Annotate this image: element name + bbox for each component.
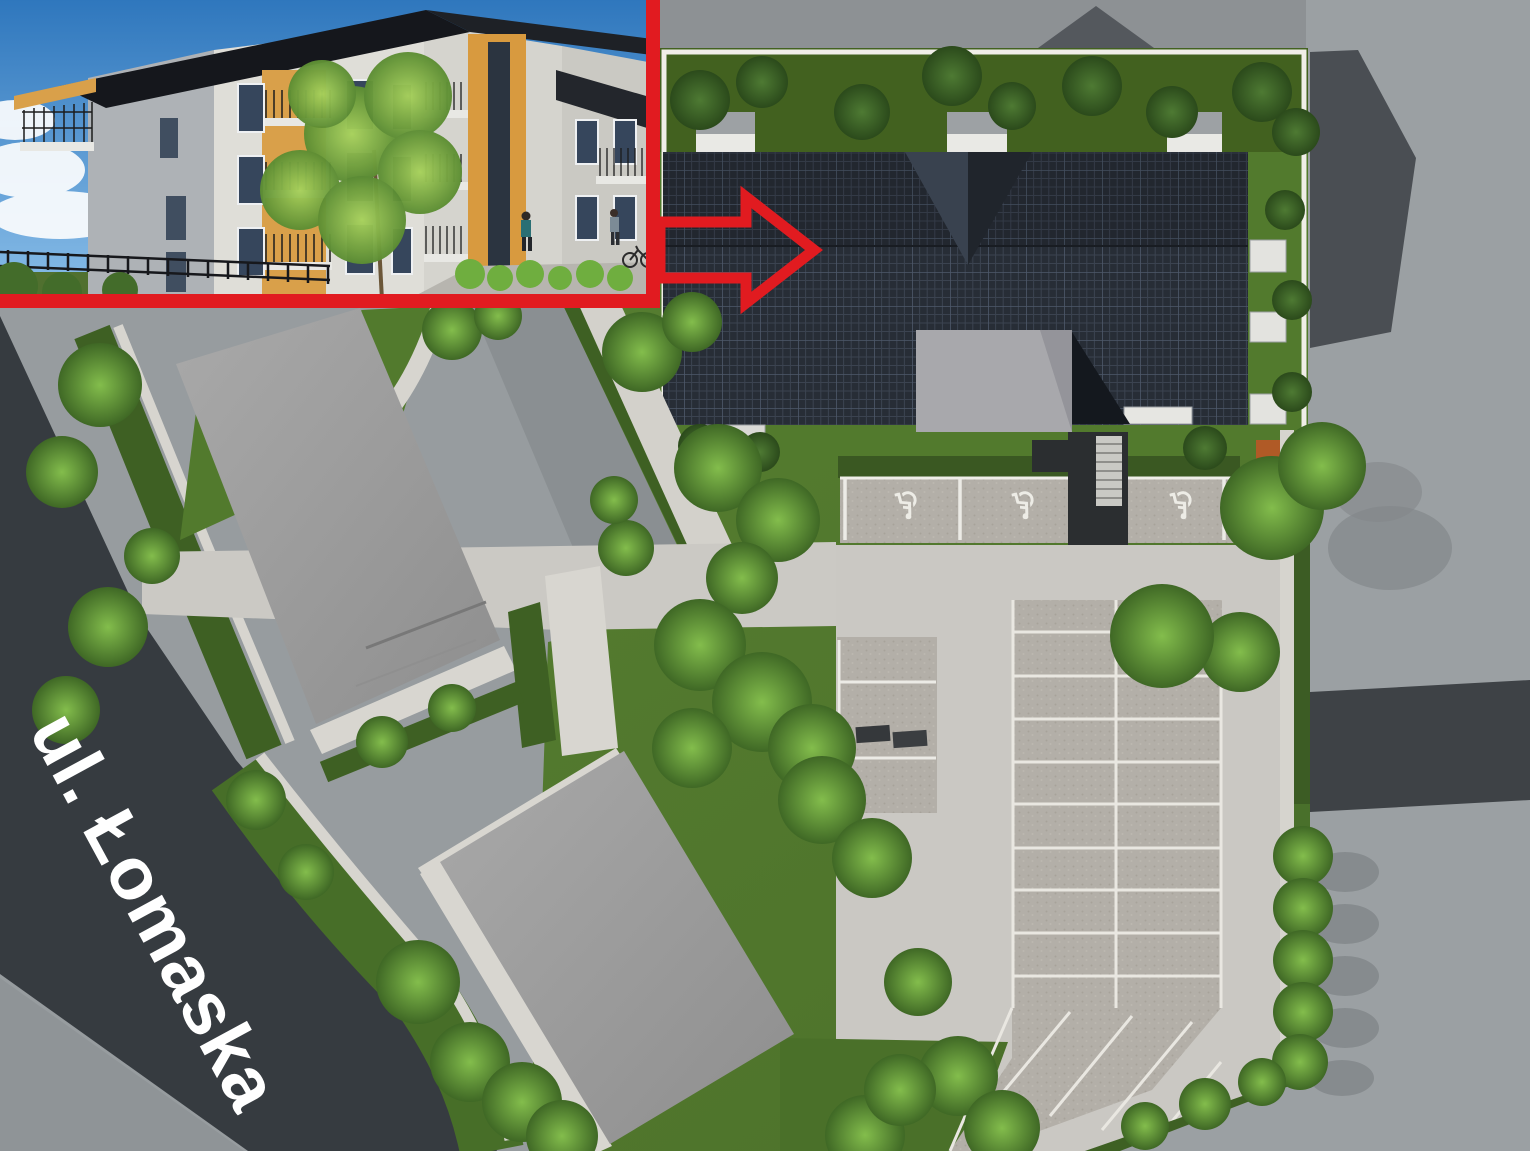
site-plan-screenshot: ♿ ♿ ♿	[0, 0, 1530, 1151]
parked-car	[892, 730, 927, 748]
parked-car	[855, 725, 890, 743]
wheelchair-icon: ♿	[1161, 481, 1199, 528]
entrance-stairs	[1096, 436, 1122, 506]
dark-drive-band	[1310, 680, 1530, 812]
wheelchair-icon: ♿	[886, 481, 924, 528]
apartment-building-roof	[663, 112, 1288, 462]
inset-building-rendering	[0, 0, 660, 308]
wheelchair-icon: ♿	[1003, 481, 1041, 528]
